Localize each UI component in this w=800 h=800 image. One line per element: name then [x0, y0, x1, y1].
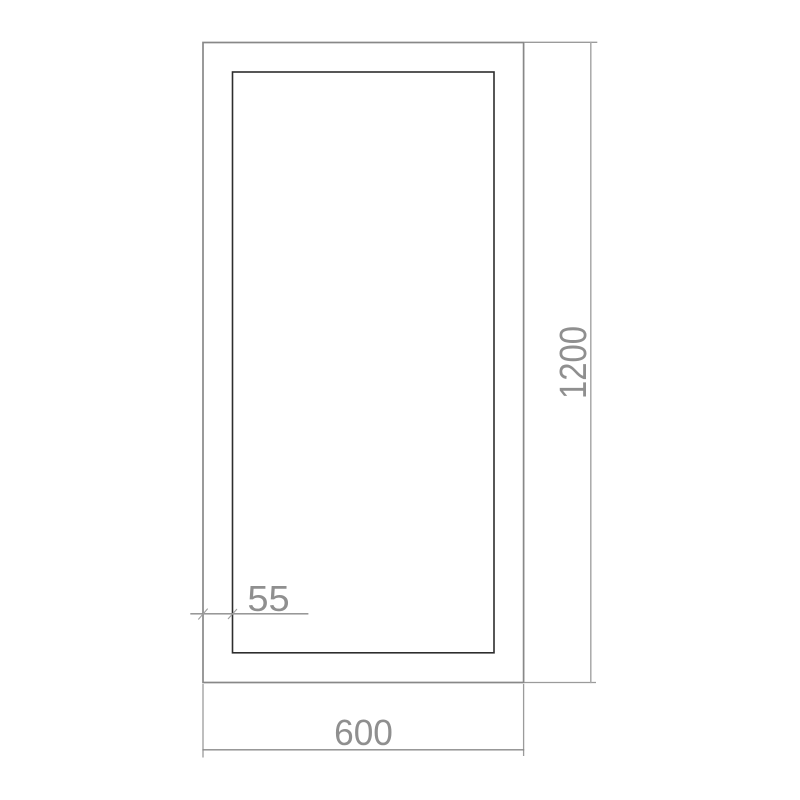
svg-text:600: 600	[334, 712, 393, 753]
svg-text:1200: 1200	[553, 326, 595, 399]
svg-text:55: 55	[247, 578, 289, 619]
